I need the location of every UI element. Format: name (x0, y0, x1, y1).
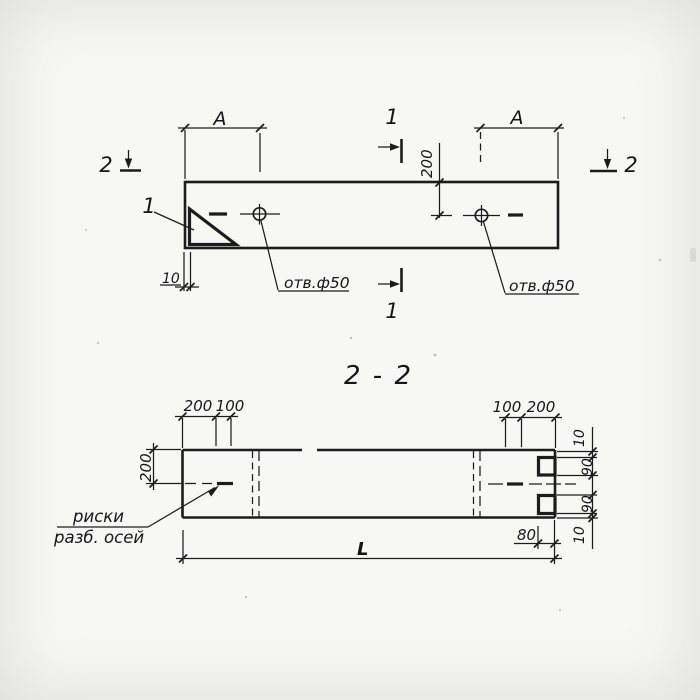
hole-label-right: отв.ф50 (509, 277, 575, 295)
section-mark-1-bottom: 1 (378, 268, 402, 323)
section-groove-upper (539, 458, 556, 476)
plan-hole-callout-left: отв.ф50 (261, 221, 350, 292)
drawing-sheet: А А 200 10 (0, 0, 700, 700)
section-groove-lower (539, 496, 556, 514)
section-1-bottom-label: 1 (385, 299, 398, 323)
dim-tr-200: 200 (527, 398, 556, 416)
dim-right-90-lower: 90 (580, 495, 596, 513)
plan-beam-outline (185, 182, 558, 248)
dim-200-label: 200 (418, 149, 436, 178)
section-dim-left-200: 200 (137, 443, 181, 490)
section-dims-right-chain: 10 90 90 10 (557, 427, 598, 549)
dim-10-label: 10 (162, 271, 180, 287)
dim-a-right-label: А (509, 107, 524, 129)
dim-right-10-top: 10 (572, 429, 588, 447)
plan-hole-right (463, 205, 523, 226)
section-2-left-label: 2 (99, 153, 112, 177)
axis-note-line2: разб. осей (53, 528, 144, 547)
section-mark-2-left: 2 (99, 150, 141, 177)
hole-label-left: отв.ф50 (284, 274, 350, 292)
dim-right-90-upper: 90 (580, 458, 596, 476)
dim-tl-200: 200 (184, 397, 213, 415)
plan-dim-10: 10 (160, 252, 199, 291)
section-mark-2-right: 2 (590, 149, 638, 177)
dim-right-10-bottom: 10 (572, 526, 588, 544)
section-dims-top-left: 200 100 (175, 397, 244, 448)
section-dim-length: L (176, 520, 562, 564)
plan-dim-a-left: А (178, 108, 267, 179)
plan-view: А А 200 10 (99, 105, 637, 323)
section-2-right-label: 2 (624, 153, 637, 177)
section-dashed-axes (253, 451, 481, 517)
dim-tl-100: 100 (216, 397, 245, 415)
plan-hole-callout-right: отв.ф50 (484, 222, 580, 295)
dim-left-200-label: 200 (137, 453, 155, 482)
section-mark-1-top: 1 (378, 105, 402, 163)
section-title: 2 - 2 (344, 361, 413, 391)
section-axis-note: риски разб. осей (53, 485, 220, 547)
detail-1-label: 1 (142, 194, 155, 218)
dim-tr-100: 100 (493, 398, 522, 416)
plan-dim-a-right: А (474, 107, 564, 179)
section-view: 2 - 2 (53, 361, 598, 564)
plan-hole-left (209, 204, 280, 225)
technical-drawing: А А 200 10 (0, 0, 700, 700)
dim-length-label: L (357, 539, 368, 560)
section-1-top-label: 1 (385, 105, 398, 129)
section-dims-top-right: 100 200 (493, 398, 562, 448)
dim-80-label: 80 (517, 526, 536, 544)
axis-note-line1: риски (72, 507, 124, 526)
dim-a-left-label: А (212, 108, 227, 130)
